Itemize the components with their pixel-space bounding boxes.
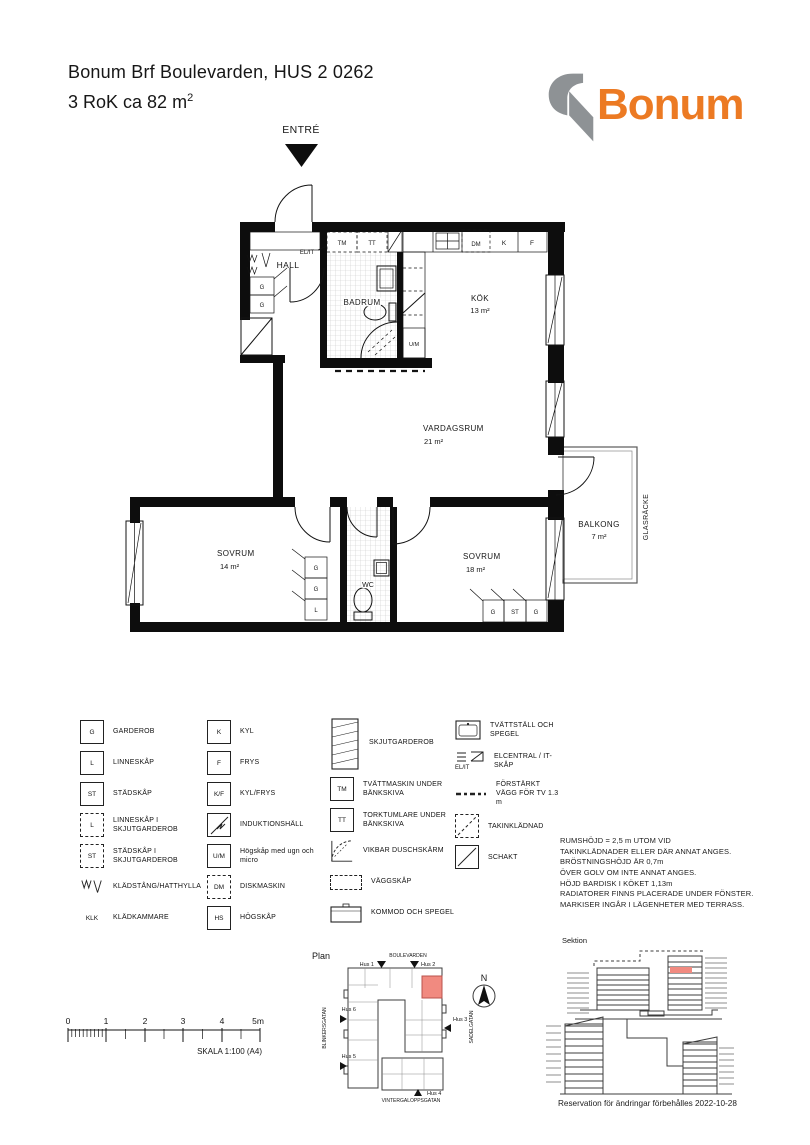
g-label: G [491,610,496,616]
highlighted-floor [670,967,692,973]
legend-label: KLÄDKAMMARE [113,913,169,922]
legend-item: EL/IT ELCENTRAL / IT-SKÅP [455,749,563,773]
room-label-badrum: BADRUM [343,298,380,307]
legend-label: INDUKTIONSHÄLL [240,820,303,829]
diskmaskin-box [462,230,490,252]
g-label: G [534,610,539,616]
duschskarm-symbol-icon [330,839,354,863]
legend-label: LINNESKÅP I SKJUTGARDEROB [113,816,201,834]
hus6-label: Hus 6 [342,1007,356,1013]
legend-item: INDUKTIONSHÄLL [207,813,327,837]
street-vintergaloppsgatan: VINTERGALOPPSGATAN [382,1098,441,1104]
balcony [563,447,637,583]
legend-item: SCHAKT [455,845,563,869]
scalebar: 0 1 2 3 4 5m SKALA 1:100 (A4) [66,1016,264,1056]
legend-item: ST STÄDSKÅP [80,782,215,806]
window [546,275,564,345]
legend-item: U/M Högskåp med ugn och micro [207,844,327,868]
legend-label: GARDEROB [113,727,155,736]
kladstang-icon [247,253,270,274]
legend-item: VÄGGSKÅP [330,870,455,894]
kyl-symbol: K [207,720,231,744]
symbol-text: TT [338,817,346,824]
legend-item: TT TORKTUMLARE UNDER BÄNKSKIVA [330,808,455,832]
frys-symbol: F [207,751,231,775]
room-area-sovrum1: 14 m² [220,562,240,571]
garderob-symbol: G [80,720,104,744]
symbol-text: U/M [213,853,225,860]
legend-col1: G GARDEROB L LINNESKÅP ST STÄDSKÅP L LIN… [80,720,215,930]
legend-label: SCHAKT [488,853,518,862]
street-blinkersgatan: BLINKERSGATAN [322,1007,328,1049]
sovrum1-cabinets [292,549,327,620]
g-label: G [314,587,319,593]
symbol-text: KLK [86,915,98,922]
legend-label: ELCENTRAL / IT-SKÅP [494,752,563,770]
legend-label: KOMMOD OCH SPEGEL [371,908,454,917]
scale-tick-3: 3 [181,1016,186,1026]
note-line: ÖVER GOLV OM INTE ANNAT ANGES. [560,868,755,879]
note-line: RUMSHÖJD = 2,5 m UTOM VID [560,836,755,847]
ugn-micro-symbol: U/M [207,844,231,868]
symbol-text: TM [337,786,346,793]
takinkladnad-symbol-icon [455,814,479,838]
window [546,518,564,600]
skjutgarderob-symbol-icon [330,718,360,770]
kommod-symbol-icon [330,903,362,923]
legend-item: VIKBAR DUSCHSKÄRM [330,839,455,863]
legend-item: FÖRSTÄRKT VÄGG FÖR TV 1.3 m [455,780,563,807]
legend-label: SKJUTGARDEROB [369,738,434,747]
linneskap-i-skjutgarderob-symbol: L [80,813,104,837]
room-label-hall: HALL [277,260,300,270]
l-label: L [314,608,318,614]
sovrum2-door [393,507,430,544]
tt-label: TT [368,241,376,247]
plan-drawing: ENTRÉ [0,0,810,1145]
skjutgarderob [250,232,320,250]
room-label-vardagsrum: VARDAGSRUM [423,424,484,433]
legend-col3: SKJUTGARDEROB TM TVÄTTMASKIN UNDER BÄNKS… [330,718,455,925]
room-area-kok: 13 m² [470,306,490,315]
symbol-text: L [90,822,94,829]
sovrum2-cabinets [470,589,547,622]
legend-item: KOMMOD OCH SPEGEL [330,901,455,925]
schakt-symbol-icon [455,845,479,869]
legend-label: KYL [240,727,254,736]
legend-item: L LINNESKÅP I SKJUTGARDEROB [80,813,215,837]
scale-caption: SKALA 1:100 (A4) [197,1047,262,1056]
scale-tick-4: 4 [220,1016,225,1026]
legend-label: Högskåp med ugn och micro [240,847,327,865]
window [546,381,564,437]
um-label: U/M [409,342,420,348]
legend-col4: TVÄTTSTÄLL OCH SPEGEL EL/IT ELCENTRAL / … [455,718,563,869]
scale-tick-0: 0 [66,1016,71,1026]
g-label: G [260,285,265,291]
legend-item: TM TVÄTTMASKIN UNDER BÄNKSKIVA [330,777,455,801]
room-label-sovrum2: SOVRUM [463,552,501,561]
room-label-wc: WC [362,582,374,589]
legend-item: L LINNESKÅP [80,751,215,775]
symbol-text: K/F [214,791,224,798]
legend-label: TORKTUMLARE UNDER BÄNKSKIVA [363,811,451,829]
kylfrys-symbol: K/F [207,782,231,806]
legend-label: VÄGGSKÅP [371,877,412,886]
siteplan-title: Plan [312,951,330,961]
legend-label: KYL/FRYS [240,789,275,798]
room-area-sovrum2: 18 m² [466,565,486,574]
north-label: N [481,973,488,983]
elit-caption: EL/IT [455,765,469,771]
hogskap-symbol: HS [207,906,231,930]
legend-label: LINNESKÅP [113,758,154,767]
legend-item: K KYL [207,720,327,744]
hus3-label: Hus 3 [453,1017,467,1023]
legend-label: FÖRSTÄRKT VÄGG FÖR TV 1.3 m [496,780,563,807]
entry-arrow-icon [285,144,318,167]
legend-label: STÄDSKÅP [113,789,152,798]
induktionshall-symbol-icon [207,813,231,837]
hus5-label: Hus 5 [342,1054,356,1060]
legend-label: TAKINKLÄDNAD [488,822,544,831]
klk-symbol: KLK [80,906,104,930]
room-label-sovrum1: SOVRUM [217,549,255,558]
legend-label: VIKBAR DUSCHSKÄRM [363,846,444,855]
dm-label: DM [471,242,480,248]
diskmaskin-symbol: DM [207,875,231,899]
sektion: Sektion [546,936,734,1094]
entry-label: ENTRÉ [282,123,320,136]
stadskap-symbol: ST [80,782,104,806]
legend-item: K/F KYL/FRYS [207,782,327,806]
scale-tick-1: 1 [104,1016,109,1026]
legend-label: HÖGSKÅP [240,913,276,922]
elit-label: EL/IT [300,250,315,256]
legend-item: HS HÖGSKÅP [207,906,327,930]
legend-label: KLÄDSTÅNG/HATTHYLLA [113,882,201,891]
symbol-text: ST [88,791,96,798]
notes-block: RUMSHÖJD = 2,5 m UTOM VID TAKINKLÄDNADER… [560,836,755,910]
kyl-label: K [502,240,507,247]
note-line: BRÖSTNINGSHÖJD ÄR 0,7m [560,857,755,868]
legend-item: SKJUTGARDEROB [330,718,455,770]
sektion-title: Sektion [562,936,587,945]
g-label: G [260,303,265,309]
wc-floor [347,507,390,622]
legend-item: TVÄTTSTÄLL OCH SPEGEL [455,718,563,742]
compass-needle-icon [478,985,490,1005]
legend-item: ST STÄDSKÅP I SKJUTGARDEROB [80,844,215,868]
hus6-marker-icon [340,1015,347,1023]
tm-label: TM [338,241,347,247]
legend-label: STÄDSKÅP I SKJUTGARDEROB [113,847,201,865]
floorplan-sheet: Bonum Brf Boulevarden, HUS 2 0262 3 RoK … [0,0,810,1145]
glasracke-label: GLASRÄCKE [642,494,650,540]
symbol-text: HS [214,915,223,922]
legend-item: TAKINKLÄDNAD [455,814,563,838]
legend-item: F FRYS [207,751,327,775]
balcony-door [556,457,594,495]
scale-tick-2: 2 [143,1016,148,1026]
hus3-marker-icon [444,1024,451,1032]
legend-label: TVÄTTMASKIN UNDER BÄNKSKIVA [363,780,451,798]
sovrum1-door [295,507,330,542]
frys-label: F [530,240,534,247]
room-label-kok: KÖK [471,294,489,303]
window [126,521,143,605]
symbol-text: ST [88,853,96,860]
room-area-vardagsrum: 21 m² [424,437,444,446]
symbol-text: L [90,760,94,767]
hus4-label: Hus 4 [427,1091,441,1097]
hus1-marker-icon [377,961,386,968]
legend-item: KLÄDSTÅNG/HATTHYLLA [80,875,215,899]
tvattstall-symbol-icon [455,720,481,740]
legend-item: G GARDEROB [80,720,215,744]
note-line: MARKISER INGÅR I LÄGENHETER MED TERRASS. [560,900,755,911]
st-label: ST [511,610,519,616]
room-area-balkong: 7 m² [592,532,608,541]
legend-label: DISKMASKIN [240,882,285,891]
note-line: RADIATORER FINNS PLACERADE UNDER FÖNSTER… [560,889,755,900]
symbol-text: DM [214,884,224,891]
legend-label: TVÄTTSTÄLL OCH SPEGEL [490,721,563,739]
note-line: HÖJD BARDISK I KÖKET 1,13m [560,879,755,890]
linneskap-symbol: L [80,751,104,775]
symbol-text: K [217,729,221,736]
forstarkt-vagg-symbol-icon [455,782,487,806]
siteplan: Plan BOULEVARDEN BLINKERSGATAN SADELGATA… [312,951,495,1104]
g-label: G [314,566,319,572]
legend-item: KLK KLÄDKAMMARE [80,906,215,930]
hus2-marker-icon [410,961,419,968]
reservation-note: Reservation för ändringar förbehålles 20… [558,1099,737,1108]
hall-door [290,268,324,302]
entrance-door [275,185,312,222]
legend-label: FRYS [240,758,259,767]
stadskap-i-skjutgarderob-symbol: ST [80,844,104,868]
hus1-label: Hus 1 [360,962,374,968]
elcentral-symbol-icon: EL/IT [455,751,485,771]
symbol-text: G [89,729,94,736]
legend-item: DM DISKMASKIN [207,875,327,899]
note-line: TAKINKLÄDNADER ELLER DÄR ANNAT ANGES. [560,847,755,858]
street-boulevarden: BOULEVARDEN [389,953,427,959]
legend-col2: K KYL F FRYS K/F KYL/FRYS INDUKTIONSHÄLL… [207,720,327,930]
induktionshall [403,293,425,313]
symbol-text: F [217,760,221,767]
hus2-label: Hus 2 [421,962,435,968]
torktumlare-symbol: TT [330,808,354,832]
vaggskap-symbol [330,875,362,890]
scale-tick-5: 5m [252,1016,264,1026]
street-sadelgatan: SADELGATAN [469,1010,475,1043]
tvattmaskin-symbol: TM [330,777,354,801]
kladstang-symbol-icon [80,875,104,899]
room-label-balkong: BALKONG [578,520,619,529]
highlighted-unit [422,976,442,998]
